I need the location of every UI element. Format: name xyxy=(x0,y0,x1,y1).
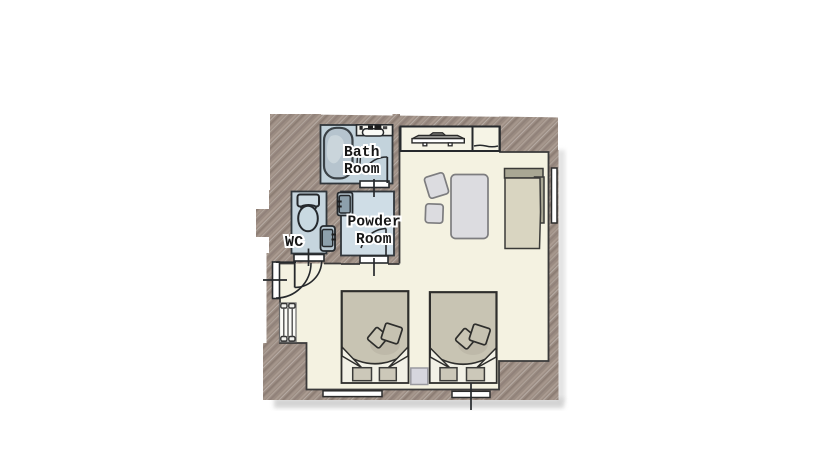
svg-text:Powder: Powder xyxy=(348,215,401,231)
svg-text:WC: WC xyxy=(285,234,303,251)
svg-text:Room: Room xyxy=(344,162,380,178)
svg-text:Room: Room xyxy=(356,232,392,248)
svg-text:Bath: Bath xyxy=(344,145,380,161)
